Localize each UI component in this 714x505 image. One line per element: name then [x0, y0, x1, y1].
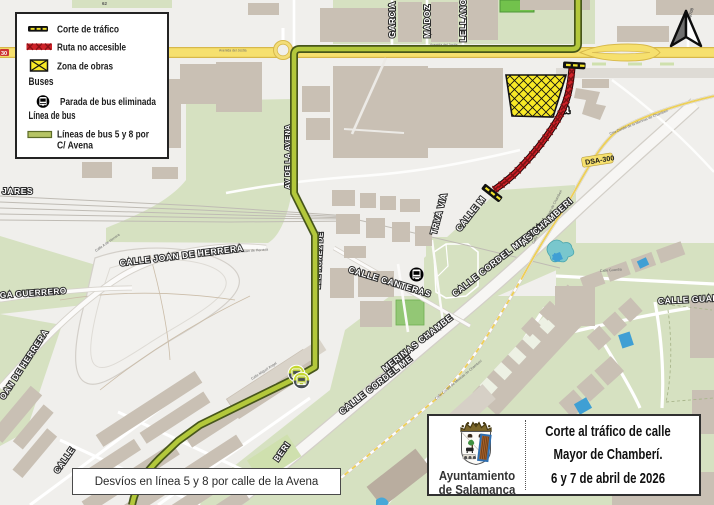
svg-text:GARCIA: GARCIA	[387, 1, 397, 38]
svg-text:Corte de tráfico: Corte de tráfico	[57, 24, 119, 35]
svg-text:Ruta no accesible: Ruta no accesible	[57, 42, 126, 53]
svg-text:Avenida del Jostia: Avenida del Jostia	[219, 49, 247, 53]
svg-text:Buses: Buses	[29, 76, 54, 88]
svg-text:30: 30	[1, 51, 7, 57]
svg-text:Línea de bus: Línea de bus	[29, 110, 76, 122]
svg-text:62: 62	[102, 1, 108, 6]
svg-text:LELLANO: LELLANO	[458, 0, 468, 42]
svg-text:Zona de obras: Zona de obras	[57, 61, 113, 72]
svg-text:MADOZ: MADOZ	[422, 4, 432, 38]
svg-text:Parada de bus eliminada: Parada de bus eliminada	[60, 97, 156, 108]
svg-text:JARES: JARES	[2, 186, 33, 196]
svg-text:C/ Avena: C/ Avena	[57, 141, 93, 152]
svg-text:Líneas de bus 5 y 8 por: Líneas de bus 5 y 8 por	[57, 130, 149, 141]
